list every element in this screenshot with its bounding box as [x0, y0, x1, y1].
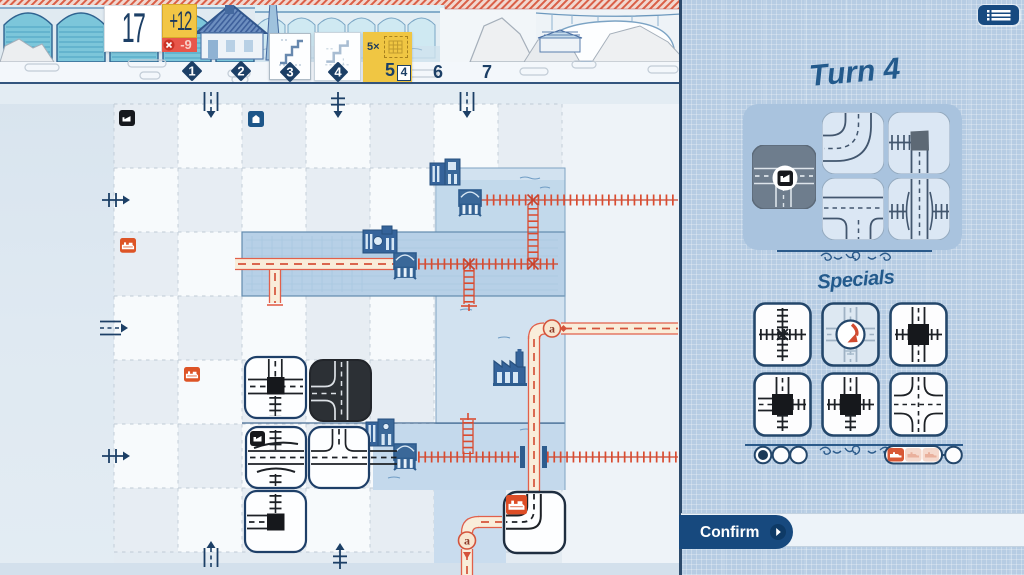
- svg-text:2: 2: [237, 64, 244, 79]
- svg-text:3: 3: [286, 65, 293, 80]
- svg-text:1: 1: [188, 64, 195, 79]
- svg-text:a: a: [549, 322, 555, 336]
- svg-text:4: 4: [334, 65, 342, 80]
- svg-text:a: a: [464, 534, 470, 548]
